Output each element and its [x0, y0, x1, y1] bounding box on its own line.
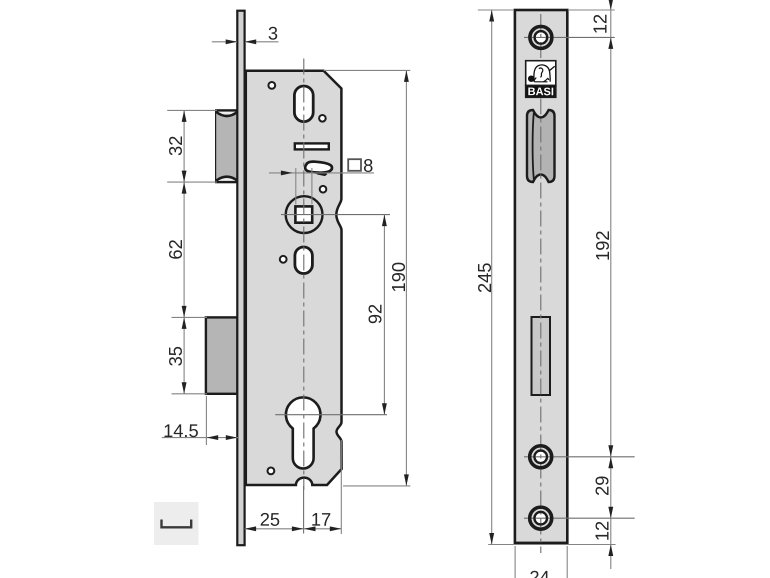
svg-text:62: 62: [165, 239, 186, 259]
svg-text:25: 25: [260, 509, 280, 530]
svg-text:29: 29: [592, 476, 613, 496]
svg-text:190: 190: [388, 262, 409, 293]
svg-text:BASI: BASI: [528, 86, 554, 98]
svg-text:24: 24: [529, 566, 549, 578]
svg-text:8: 8: [363, 155, 373, 176]
svg-text:12: 12: [591, 521, 612, 541]
svg-text:35: 35: [165, 346, 186, 366]
svg-text:92: 92: [364, 304, 385, 324]
svg-text:32: 32: [165, 136, 186, 156]
svg-text:17: 17: [311, 509, 331, 530]
svg-text:14.5: 14.5: [163, 420, 199, 441]
svg-text:245: 245: [474, 263, 495, 294]
svg-text:192: 192: [592, 230, 613, 261]
svg-text:3: 3: [268, 22, 278, 43]
svg-text:12: 12: [590, 14, 611, 34]
